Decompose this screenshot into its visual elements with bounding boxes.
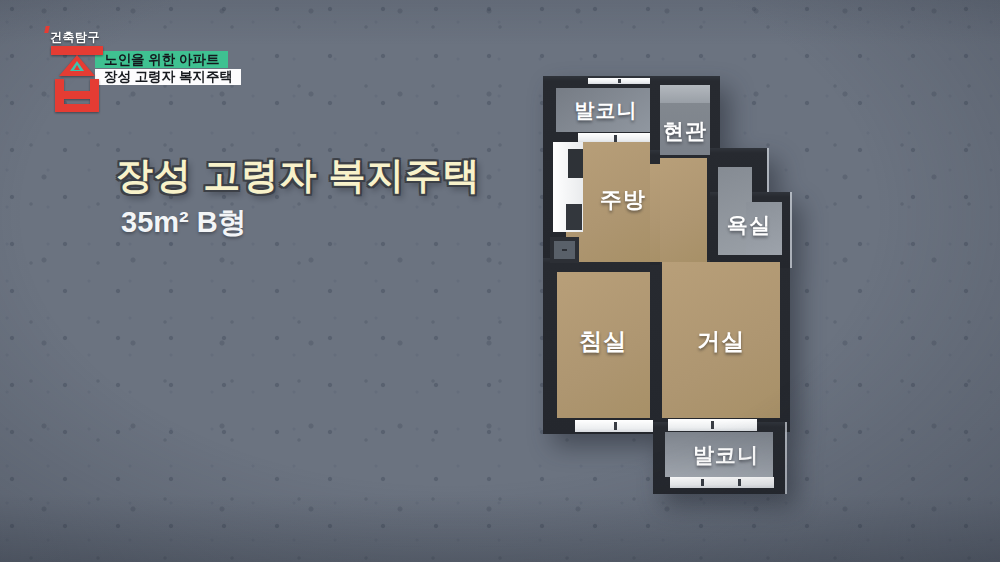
room-label-entrance: 현관: [663, 117, 707, 145]
show-logo-text: 건축탐구: [50, 30, 100, 44]
banner-subtopic: 장성 고령자 복지주택: [95, 69, 241, 85]
balcony-top-window: [588, 78, 650, 84]
room-label-balcony-top: 발코니: [575, 97, 638, 124]
kitchen-sink: [568, 149, 583, 178]
kitchen-stove: [566, 204, 582, 230]
window-mullion: [614, 422, 617, 430]
living-room-window: [668, 419, 757, 431]
window-mullion: [614, 135, 617, 142]
room-label-bedroom: 침실: [579, 326, 627, 357]
entrance-door: [660, 85, 710, 103]
utility-unit: [550, 237, 579, 263]
room-label-balcony-bottom: 발코니: [693, 441, 759, 469]
banner-topic: 노인을 위한 아파트: [95, 51, 228, 68]
balcony-bottom-window: [670, 477, 774, 488]
show-logo-jip-icon: 집: [51, 46, 103, 112]
logo-shape-topbar: [51, 46, 103, 55]
banner-subtopic-label: 장성 고령자 복지주택: [104, 69, 233, 84]
window-mullion: [618, 79, 621, 83]
window-mullion: [701, 479, 704, 487]
room-label-bathroom: 욕실: [727, 211, 771, 239]
window-mullion: [738, 479, 741, 487]
show-logo-name: 건축탐구: [50, 29, 100, 46]
logo-inner-triangle-icon: [74, 65, 80, 70]
unit-size-subtitle: 35m² B형: [121, 203, 247, 243]
logo-shape-botbar: [55, 104, 99, 112]
logo-shape-midbar: [55, 91, 99, 99]
hallway-floor: [660, 158, 707, 262]
bedroom-window: [575, 420, 653, 432]
page-title: 장성 고령자 복지주택: [116, 151, 481, 201]
kitchen-floor-ext: [650, 164, 660, 262]
window-mullion: [711, 421, 714, 429]
floor-plan: 발코니 현관 주방 욕실 침실 거실 발코니: [543, 76, 791, 496]
broadcast-frame: 건축탐구 집 노인을 위한 아파트 장성 고령자 복지주택 장성 고령자 복지주…: [0, 0, 1000, 562]
room-label-living-room: 거실: [697, 326, 745, 357]
room-label-kitchen: 주방: [600, 185, 646, 215]
banner-topic-label: 노인을 위한 아파트: [104, 52, 220, 67]
logo-quote-mark-icon: [44, 26, 49, 33]
